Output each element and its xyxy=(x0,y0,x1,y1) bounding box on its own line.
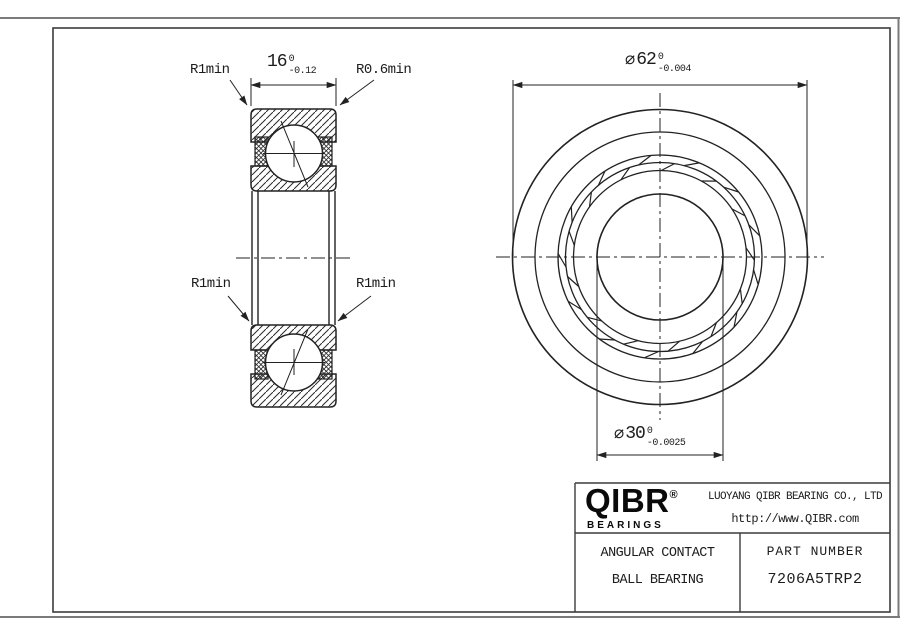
outer-dia-tolerance: 0 -0.004 xyxy=(658,52,691,75)
diameter-symbol: ⌀ xyxy=(625,51,635,68)
diameter-symbol: ⌀ xyxy=(614,425,624,442)
width-tolerance: 0 -0.12 xyxy=(289,54,317,77)
radius-label-top-right: R0.6min xyxy=(356,63,411,77)
part-number-value: 7206A5TRP2 xyxy=(742,572,888,587)
product-name-line1: ANGULAR CONTACT xyxy=(577,547,738,561)
sheet-border xyxy=(0,18,900,617)
drawing-canvas xyxy=(0,0,900,636)
radius-label-mid-left: R1min xyxy=(191,277,231,291)
registered-mark: ® xyxy=(670,489,679,501)
company-logo: QIBR® BEARINGS xyxy=(585,484,678,531)
bore-dia-tolerance: 0 -0.0025 xyxy=(647,426,686,449)
leader-r1min-mid-left xyxy=(228,296,249,321)
leader-r06min-top-right xyxy=(340,80,374,105)
width-value: 16 xyxy=(267,53,287,71)
outer-dia-dimension-text: ⌀ 62 0 -0.004 xyxy=(625,51,691,74)
front-view xyxy=(496,93,824,420)
company-name: LUOYANG QIBR BEARING CO., LTD xyxy=(703,492,887,503)
bore-dia-dimension-text: ⌀ 30 0 -0.0025 xyxy=(614,425,685,448)
cross-section-view xyxy=(236,109,352,407)
logo-subtitle: BEARINGS xyxy=(587,520,678,531)
product-name-line2: BALL BEARING xyxy=(577,574,738,588)
leader-r1min-mid-right xyxy=(338,296,371,321)
radius-label-top-left: R1min xyxy=(190,63,230,77)
logo-brand: QIBR® xyxy=(585,484,678,517)
company-website: http://www.QIBR.com xyxy=(703,513,887,525)
part-number-label: PART NUMBER xyxy=(742,545,888,558)
front-view-centerlines xyxy=(496,93,824,420)
width-dimension-text: 16 0 -0.12 xyxy=(267,53,316,76)
drawing-sheet: R1min 16 0 -0.12 R0.6min R1min R1min ⌀ 6… xyxy=(0,0,900,636)
leader-r1min-top-left xyxy=(230,80,247,105)
radius-label-mid-right: R1min xyxy=(356,277,396,291)
